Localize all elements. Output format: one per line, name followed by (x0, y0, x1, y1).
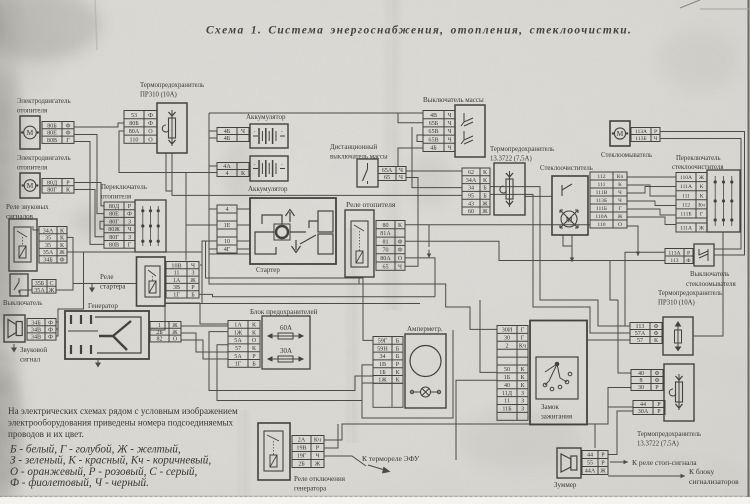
svg-text:О: О (148, 129, 153, 135)
svg-text:Р: Р (687, 250, 690, 256)
svg-text:11Д: 11Д (502, 391, 513, 397)
svg-text:отопителя: отопителя (101, 193, 132, 201)
svg-text:4Б: 4Б (224, 136, 231, 142)
svg-text:4В: 4В (430, 113, 437, 119)
svg-text:Термопредохранитель: Термопредохранитель (658, 290, 722, 297)
svg-text:2: 2 (505, 343, 508, 349)
svg-text:Ч: Ч (448, 113, 452, 119)
svg-text:111Б: 111Б (596, 206, 607, 212)
svg-text:65В: 65В (428, 129, 438, 135)
svg-text:З: З (521, 391, 524, 397)
svg-text:35: 35 (45, 243, 51, 249)
svg-text:отопителя: отопителя (17, 164, 48, 172)
svg-text:81А: 81А (380, 231, 391, 237)
svg-text:М: М (27, 128, 34, 137)
svg-text:Ч: Ч (448, 121, 452, 127)
svg-text:Амперметр.: Амперметр. (407, 325, 443, 333)
svg-text:2А: 2А (298, 438, 306, 444)
svg-text:Б: Б (252, 362, 256, 368)
svg-text:Ч: Ч (128, 227, 132, 233)
svg-text:80: 80 (382, 223, 388, 229)
svg-text:Ж: Ж (482, 209, 488, 215)
svg-text:Стеклоомыватель: Стеклоомыватель (601, 152, 652, 159)
svg-text:1А: 1А (234, 323, 242, 329)
svg-text:Ф: Ф (654, 331, 659, 337)
svg-text:Аккумулятор: Аккумулятор (246, 113, 286, 121)
svg-text:Ч: Ч (241, 129, 245, 135)
svg-text:35А: 35А (43, 250, 54, 256)
svg-text:44: 44 (587, 453, 593, 459)
svg-text:44А: 44А (585, 469, 596, 475)
svg-text:Ж: Ж (172, 330, 178, 336)
svg-text:11: 11 (174, 271, 180, 277)
svg-text:З: З (128, 219, 131, 225)
svg-text:К: К (700, 193, 704, 199)
svg-text:80Е: 80Е (47, 131, 57, 137)
svg-text:Электродвигатель: Электродвигатель (17, 97, 71, 105)
svg-text:111А: 111А (680, 226, 692, 232)
svg-text:30: 30 (504, 336, 510, 342)
svg-text:65: 65 (384, 175, 390, 181)
svg-text:Ф: Ф (48, 335, 53, 341)
svg-text:35Б: 35Б (35, 281, 45, 287)
svg-text:Дистанционный: Дистанционный (330, 144, 378, 151)
svg-text:Ф: Ф (398, 239, 403, 245)
svg-text:50: 50 (504, 367, 510, 373)
svg-text:59Н: 59Н (377, 346, 388, 352)
svg-text:111В: 111В (596, 190, 608, 196)
svg-text:Ф: Ф (66, 123, 71, 129)
svg-text:ПР310 (10А): ПР310 (10А) (140, 91, 177, 98)
svg-text:Ч: Ч (399, 168, 403, 174)
svg-text:30И: 30И (502, 328, 513, 334)
svg-text:Р: Р (654, 129, 657, 135)
svg-text:35: 35 (45, 236, 51, 242)
svg-text:13.3722 (7,5А): 13.3722 (7,5А) (490, 155, 532, 162)
svg-text:80В: 80В (47, 138, 57, 144)
svg-text:2Б: 2Б (156, 330, 163, 336)
svg-text:1Г: 1Г (173, 293, 180, 299)
svg-text:80В: 80В (109, 243, 119, 249)
svg-text:О: О (618, 222, 622, 228)
svg-text:112: 112 (597, 174, 605, 180)
svg-text:4Б: 4Б (430, 146, 437, 152)
svg-text:О: О (148, 137, 153, 143)
svg-text:С: С (49, 281, 53, 287)
svg-text:1А: 1А (173, 278, 181, 284)
svg-text:проводов и их цвет.: проводов и их цвет. (8, 429, 84, 439)
svg-text:65Б: 65Б (429, 121, 439, 127)
svg-text:генератора: генератора (294, 485, 327, 493)
svg-text:80А: 80А (129, 129, 140, 135)
svg-text:59Г: 59Г (378, 339, 388, 345)
svg-text:60: 60 (468, 209, 474, 215)
svg-text:Схема 1. Система энергоснабжен: Схема 1. Система энергоснабжения, отопле… (206, 25, 632, 37)
svg-text:Б: Б (191, 293, 195, 299)
svg-text:Ф: Ф (686, 258, 691, 264)
svg-text:1Е: 1Е (224, 223, 231, 229)
svg-text:Реле: Реле (100, 273, 114, 281)
svg-text:Б: Б (483, 194, 487, 200)
svg-text:Ч: Ч (654, 136, 658, 142)
svg-text:Кч: Кч (698, 202, 705, 208)
svg-text:111: 111 (598, 182, 606, 188)
svg-text:Ч: Ч (448, 129, 452, 135)
svg-text:Ж: Ж (190, 278, 196, 284)
svg-text:Генератор: Генератор (88, 302, 118, 310)
svg-text:Ф: Ф (148, 113, 153, 119)
svg-text:З: З (191, 271, 194, 277)
svg-text:Ч: Ч (399, 175, 403, 181)
svg-text:Ч: Ч (618, 190, 622, 196)
svg-text:1Ж: 1Ж (378, 378, 387, 384)
svg-text:30А: 30А (280, 347, 292, 355)
svg-text:1Г: 1Г (235, 362, 242, 368)
svg-text:К блоку: К блоку (689, 467, 715, 476)
svg-text:34А: 34А (43, 228, 54, 234)
svg-text:55: 55 (587, 461, 593, 467)
svg-text:О: О (252, 338, 257, 344)
svg-text:10В: 10В (171, 263, 181, 269)
svg-text:44: 44 (640, 402, 646, 408)
svg-text:11: 11 (504, 399, 510, 405)
svg-text:Термопредохранитель: Термопредохранитель (140, 82, 204, 89)
svg-text:113А: 113А (668, 250, 680, 256)
svg-text:19Г: 19Г (297, 454, 307, 460)
svg-text:Ф: Ф (60, 258, 65, 264)
svg-text:Г: Г (521, 328, 525, 334)
svg-text:4Б: 4Б (224, 129, 231, 135)
svg-text:112: 112 (682, 202, 690, 208)
svg-text:30А: 30А (638, 409, 649, 415)
svg-text:1Ж: 1Ж (234, 330, 243, 336)
svg-text:34В: 34В (31, 335, 41, 341)
svg-text:Реле отопителя: Реле отопителя (346, 200, 396, 209)
svg-text:Ж: Ж (315, 462, 321, 468)
svg-text:4: 4 (225, 171, 228, 177)
svg-text:Выключатель массы: Выключатель массы (423, 96, 484, 104)
svg-text:Ф: Ф (655, 378, 660, 384)
svg-text:34Б: 34Б (43, 258, 53, 264)
svg-text:Ж: Ж (600, 469, 606, 475)
svg-text:70: 70 (382, 248, 388, 254)
svg-text:Реле звуковых: Реле звуковых (6, 203, 49, 211)
svg-text:34: 34 (379, 354, 385, 360)
svg-text:Ч: Ч (316, 454, 320, 460)
svg-text:Ч: Ч (398, 264, 402, 270)
svg-text:стеклоомывателя: стеклоомывателя (686, 281, 736, 288)
svg-text:57А: 57А (635, 331, 646, 337)
svg-text:К: К (700, 184, 704, 190)
svg-text:Б: Б (396, 339, 400, 345)
svg-text:80А: 80А (380, 256, 391, 262)
svg-text:отопителя: отопителя (17, 107, 48, 115)
svg-text:43: 43 (468, 201, 474, 207)
svg-text:Аккумулятор: Аккумулятор (248, 185, 288, 193)
svg-text:34В: 34В (31, 328, 41, 334)
svg-text:Блок предохранителей: Блок предохранителей (250, 308, 318, 316)
svg-text:Термопредохранитель: Термопредохранитель (637, 431, 701, 438)
svg-text:Ч: Ч (448, 137, 452, 143)
svg-text:113: 113 (636, 324, 645, 330)
svg-text:113А: 113А (635, 129, 647, 135)
svg-text:Реле отключения: Реле отключения (294, 475, 346, 483)
svg-text:Выключатель: Выключатель (690, 271, 729, 278)
svg-text:65В: 65В (428, 137, 438, 143)
svg-text:Ф: Ф (398, 248, 403, 254)
svg-text:113Б: 113Б (635, 136, 646, 142)
svg-text:Ж: Ж (59, 250, 65, 256)
svg-text:К реле стоп-сигнала: К реле стоп-сигнала (632, 458, 697, 467)
svg-text:Ф - фиолетовый, Ч - черный.: Ф - фиолетовый, Ч - черный. (10, 477, 149, 489)
svg-text:сигнализаторов: сигнализаторов (689, 477, 739, 486)
svg-text:2Б: 2Б (298, 462, 305, 468)
svg-text:Звуковой: Звуковой (20, 346, 47, 354)
svg-text:стартера: стартера (100, 283, 126, 291)
svg-text:Кч: Кч (314, 438, 321, 444)
svg-text:57: 57 (637, 338, 643, 344)
svg-text:111А: 111А (680, 184, 692, 190)
svg-text:110А: 110А (680, 175, 692, 181)
svg-text:На электрических схемах рядом: На электрических схемах рядом с условным… (8, 406, 238, 416)
svg-text:34: 34 (468, 186, 474, 192)
svg-text:Б: Б (483, 186, 487, 192)
svg-text:З - зеленый, К - красный, Кч -: З - зеленый, К - красный, Кч - коричневы… (10, 455, 211, 467)
svg-text:Выключатель: Выключатель (3, 300, 42, 307)
svg-text:Электродвигатель: Электродвигатель (17, 154, 71, 162)
svg-text:80Д: 80Д (47, 180, 58, 186)
svg-text:80Ж: 80Ж (108, 227, 120, 233)
svg-text:З: З (521, 399, 524, 405)
svg-text:Ч: Ч (618, 198, 622, 204)
svg-text:80Б: 80Б (129, 121, 139, 127)
svg-text:111Б: 111Б (680, 212, 691, 218)
svg-text:З: З (521, 407, 524, 413)
svg-text:111: 111 (682, 193, 690, 199)
svg-text:10: 10 (224, 239, 230, 245)
svg-text:19В: 19В (296, 446, 306, 452)
svg-text:1: 1 (158, 323, 161, 329)
svg-text:Ф: Ф (655, 371, 660, 377)
svg-text:110А: 110А (595, 214, 607, 220)
svg-text:Ф: Ф (48, 320, 53, 326)
svg-text:Б - белый, Г - голубой, Ж - же: Б - белый, Г - голубой, Ж - желтый, (9, 444, 181, 456)
svg-text:80Д: 80Д (109, 204, 120, 210)
svg-text:80Е: 80Е (109, 212, 119, 218)
svg-text:Ф: Ф (48, 328, 53, 334)
svg-text:95: 95 (468, 194, 474, 200)
svg-text:11Б: 11Б (502, 407, 512, 413)
svg-text:Ж: Ж (172, 323, 178, 329)
svg-text:5А: 5А (234, 338, 242, 344)
svg-text:М: М (27, 181, 34, 190)
svg-text:Замок: Замок (541, 403, 560, 411)
svg-text:80Г: 80Г (109, 219, 119, 225)
svg-text:80Г: 80Г (109, 235, 119, 241)
svg-text:34Б: 34Б (31, 320, 41, 326)
svg-text:Ж: Ж (482, 201, 488, 207)
svg-text:113: 113 (670, 258, 678, 264)
svg-text:Переключатель: Переключатель (101, 183, 147, 191)
svg-text:113Б: 113Б (596, 198, 607, 204)
svg-text:Ф: Ф (148, 121, 153, 127)
svg-text:М: М (617, 129, 624, 138)
svg-text:Б: Б (396, 354, 400, 360)
svg-text:Термопредохранитель: Термопредохранитель (490, 146, 554, 153)
svg-text:40: 40 (504, 383, 510, 389)
svg-text:57: 57 (235, 346, 241, 352)
svg-text:ПР310 (10А): ПР310 (10А) (658, 299, 695, 306)
svg-text:Ф: Ф (127, 212, 132, 218)
svg-text:О: О (173, 337, 178, 343)
svg-text:Ч: Ч (191, 263, 195, 269)
svg-text:Ж: Ж (49, 288, 55, 294)
svg-text:1Б: 1Б (379, 370, 386, 376)
svg-text:сигнал: сигнал (20, 356, 41, 364)
svg-text:О - оранжевый, Р - розовый, С: О - оранжевый, Р - розовый, С - серый, (10, 466, 198, 478)
svg-text:Переключатель: Переключатель (676, 155, 721, 162)
svg-text:34А: 34А (466, 178, 477, 184)
svg-text:1Б: 1Б (504, 375, 511, 381)
svg-text:4А: 4А (223, 164, 231, 170)
svg-text:Г: Г (128, 243, 132, 249)
svg-text:4Г: 4Г (224, 247, 231, 253)
svg-text:Стеклоочиститель: Стеклоочиститель (540, 165, 593, 172)
svg-text:40: 40 (638, 371, 644, 377)
svg-text:Кч: Кч (519, 343, 526, 349)
svg-text:30: 30 (638, 385, 644, 391)
svg-text:4: 4 (225, 207, 228, 213)
svg-text:82: 82 (156, 337, 162, 343)
svg-text:зажигания: зажигания (541, 413, 573, 421)
svg-text:53: 53 (131, 113, 137, 119)
svg-text:Зуммер: Зуммер (554, 481, 577, 489)
svg-text:О: О (398, 256, 403, 262)
svg-text:60А: 60А (280, 324, 292, 332)
svg-text:1В: 1В (379, 362, 386, 368)
svg-text:Ф: Ф (654, 324, 659, 330)
svg-text:К: К (618, 182, 622, 188)
svg-text:65А: 65А (382, 168, 393, 174)
svg-text:Стартер: Стартер (256, 266, 280, 274)
svg-text:65: 65 (382, 264, 388, 270)
svg-text:Ф: Ф (66, 131, 71, 137)
svg-text:3В: 3В (173, 285, 180, 291)
svg-text:К термореле ЭФУ: К термореле ЭФУ (362, 454, 420, 463)
svg-text:80Г: 80Г (47, 188, 57, 194)
svg-text:Кч: Кч (617, 174, 624, 180)
svg-text:81: 81 (382, 239, 388, 245)
svg-text:62: 62 (468, 170, 474, 176)
svg-text:35А: 35А (34, 288, 45, 294)
svg-text:Б: Б (396, 346, 400, 352)
svg-text:Г: Г (66, 138, 70, 144)
svg-text:З: З (128, 235, 131, 241)
svg-text:110: 110 (597, 222, 605, 228)
svg-text:электрооборудования приведены: электрооборудования приведены номера под… (8, 418, 234, 428)
svg-text:80Б: 80Б (47, 123, 57, 129)
svg-text:5А: 5А (234, 354, 242, 360)
svg-text:110: 110 (130, 137, 139, 143)
svg-text:Ч: Ч (448, 146, 452, 152)
svg-text:8: 8 (639, 378, 642, 384)
svg-text:13.3722 (7,5А): 13.3722 (7,5А) (637, 440, 679, 447)
svg-text:Г: Г (521, 336, 525, 342)
